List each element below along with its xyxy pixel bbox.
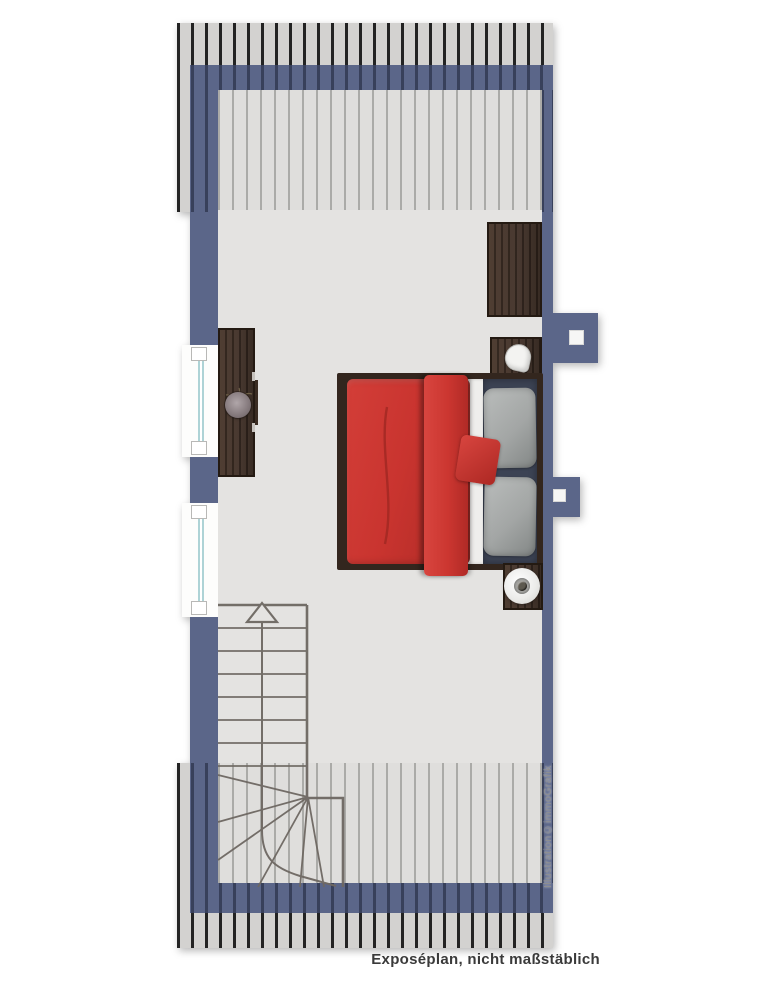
pillow-bottom — [483, 477, 536, 557]
plant-pot — [225, 392, 251, 418]
dresser-step — [255, 380, 258, 425]
table-lamp-core — [517, 581, 527, 591]
plan-caption: Exposéplan, nicht maßstäblich — [371, 951, 600, 968]
floorplan-root: Illustration©immoGrafik Exposéplan, nich… — [0, 0, 775, 1000]
accent-cushion — [455, 434, 502, 486]
drawer-handle — [252, 372, 255, 381]
drawer-handle — [252, 423, 255, 432]
dresser — [218, 328, 255, 477]
stair-walk-line — [262, 622, 336, 886]
illustration-credit: Illustration©immoGrafik — [542, 742, 556, 888]
bed — [337, 373, 543, 570]
wardrobe — [487, 222, 542, 317]
table-lamp — [504, 568, 540, 604]
shell-lamp — [502, 342, 533, 374]
